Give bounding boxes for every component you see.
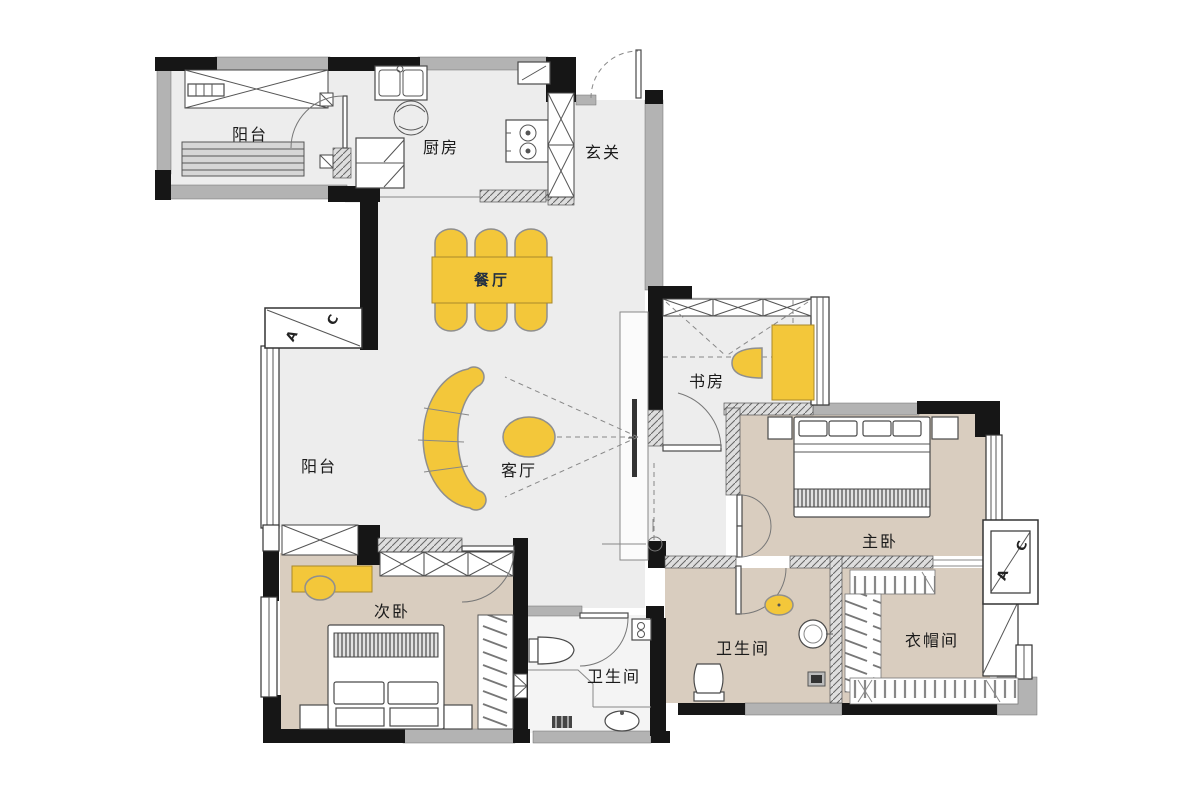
- room-label-kitchen: 厨房: [423, 138, 459, 157]
- desk: [772, 325, 814, 400]
- tall-cabinet: [548, 93, 574, 197]
- balcony-bottom-cabinet: [263, 525, 358, 555]
- hanger-rod-bottom: [850, 678, 1018, 704]
- dining-chair: [435, 302, 467, 331]
- range-hood-icon: [518, 62, 550, 84]
- wardrobe: [478, 615, 513, 729]
- room-label-balcony-living: 阳台: [301, 457, 337, 476]
- dining-chair: [435, 229, 467, 258]
- floorplan: 餐厅: [0, 0, 1200, 800]
- room-label-dining: 餐厅: [474, 271, 510, 289]
- window-second-bedroom: [261, 597, 277, 697]
- ac-platform-left: A C: [265, 308, 362, 348]
- room-label-bathroom-master: 卫生间: [716, 639, 770, 658]
- room-label-entry: 玄关: [585, 143, 621, 162]
- bed-second: [328, 625, 444, 729]
- room-label-second-bedroom: 次卧: [374, 602, 410, 621]
- room-label-master-bedroom: 主卧: [862, 532, 898, 551]
- bedroom-cabinet-row: [380, 552, 513, 576]
- room-label-closet: 衣帽间: [905, 631, 959, 650]
- dining-chair: [475, 302, 507, 331]
- window-balcony-living: [261, 346, 279, 528]
- washer-icon: [188, 84, 224, 96]
- fridge-icon: [356, 138, 404, 188]
- window-closet-corner: [983, 602, 1032, 679]
- room-label-living: 客厅: [501, 461, 537, 480]
- floorplan-drawing: 餐厅: [0, 0, 1200, 800]
- coffee-table: [503, 417, 555, 457]
- study-cabinet-row: [663, 299, 811, 316]
- stove-icon: [506, 120, 548, 162]
- dining-chair: [515, 302, 547, 331]
- radiator-icon: [182, 142, 304, 176]
- floor-drain-icon: [808, 672, 825, 686]
- room-label-balcony-top: 阳台: [232, 125, 268, 144]
- ac-platform-right: A C: [983, 520, 1038, 604]
- hanger-rod-top: [850, 570, 935, 594]
- nightstand: [768, 417, 792, 439]
- desk-chair: [305, 576, 335, 600]
- washing-machine-icon: [632, 619, 651, 640]
- room-label-bathroom-main: 卫生间: [587, 667, 641, 686]
- wall-vent-icon: [514, 674, 527, 698]
- dining-chair: [515, 229, 547, 258]
- dining-chair: [475, 229, 507, 258]
- floor-balcony-living: [278, 345, 362, 527]
- hanger-rod-left: [845, 594, 881, 692]
- kitchen-sink: [375, 66, 427, 100]
- nightstand: [444, 705, 472, 729]
- balcony-cabinet: [185, 70, 328, 108]
- bed-master: [794, 417, 930, 517]
- dining-set: 餐厅: [432, 229, 552, 331]
- nightstand: [300, 705, 328, 729]
- toilet-icon: [694, 664, 724, 701]
- room-label-study: 书房: [689, 372, 725, 391]
- entry-door: [591, 50, 641, 98]
- tv-cabinet: [620, 312, 648, 560]
- window-master-bedroom: [986, 435, 1002, 523]
- nightstand: [932, 417, 958, 439]
